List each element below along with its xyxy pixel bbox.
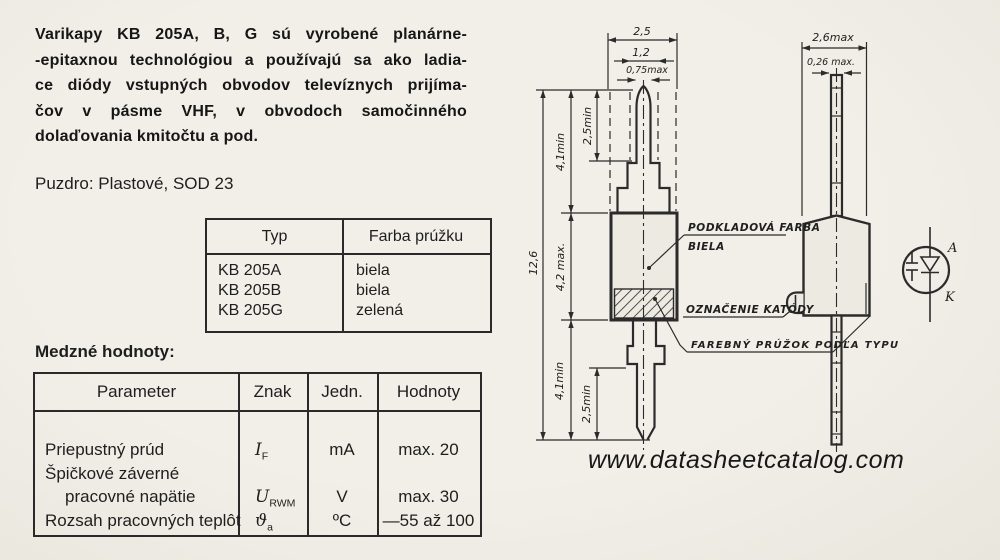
parameter-column: Priepustný prúd Špičkové záverné pracovn… bbox=[35, 438, 238, 535]
type-table-column-divider bbox=[342, 220, 344, 331]
package-drawing: 2,5 1,2 0,75max 12,6 4,1min 2,5min 4,2 m… bbox=[500, 0, 1000, 560]
table-row: KB 205A biela bbox=[207, 261, 490, 281]
varicap-symbol: A K bbox=[903, 227, 957, 322]
dim-body-length: 4,2 max. bbox=[554, 243, 567, 291]
parameter-cell: pracovné napätie bbox=[35, 485, 238, 509]
unit-cell bbox=[307, 462, 377, 486]
limits-table-header-row: Parameter Znak Jedn. Hodnoty bbox=[35, 374, 480, 410]
type-table: Typ Farba prúžku KB 205A biela KB 205B b… bbox=[205, 218, 492, 333]
symbol-cell bbox=[238, 462, 307, 486]
type-cell: KB 205G bbox=[207, 301, 342, 321]
parameter-cell: Rozsah pracovných teplôt bbox=[35, 509, 238, 533]
intro-line-1: Varikapy KB 205A, B, G sú vyrobené planá… bbox=[35, 22, 467, 48]
dim-lead-top: 4,1min bbox=[554, 133, 567, 171]
table-row: KB 205G zelená bbox=[207, 301, 490, 321]
color-cell: zelená bbox=[342, 301, 490, 321]
type-table-header-farba: Farba prúžku bbox=[342, 220, 490, 253]
color-cell: biela bbox=[342, 281, 490, 301]
limits-table: Parameter Znak Jedn. Hodnoty Priepustný … bbox=[33, 372, 482, 537]
value-cell: max. 30 bbox=[377, 485, 480, 509]
bottom-lead bbox=[628, 320, 665, 440]
limits-header-jedn: Jedn. bbox=[307, 374, 377, 410]
label-base-color-line1: PODKLADOVÁ FARBA bbox=[688, 221, 821, 234]
dim-width-outer: 2,5 bbox=[633, 25, 651, 38]
parameter-cell: Špičkové záverné bbox=[35, 462, 238, 486]
type-cell: KB 205A bbox=[207, 261, 342, 281]
unit-cell: V bbox=[307, 485, 377, 509]
value-cell bbox=[377, 462, 480, 486]
anode-label: A bbox=[947, 241, 957, 256]
value-column: max. 20 max. 30 —55 až 100 bbox=[377, 438, 480, 535]
unit-cell: mA bbox=[307, 438, 377, 462]
limits-header-hodnoty: Hodnoty bbox=[377, 374, 480, 410]
intro-line-4: čov v pásme VHF, v obvodoch samočinného bbox=[35, 99, 467, 125]
diode-triangle bbox=[921, 257, 939, 271]
dim-total-length: 12,6 bbox=[527, 251, 540, 276]
intro-line-3: ce diódy vstupných obvodov televíznych p… bbox=[35, 73, 467, 99]
label-cathode-mark: OZNAČENIE KATÓDY bbox=[686, 302, 815, 316]
parameter-cell: Priepustný prúd bbox=[35, 438, 238, 462]
side-view-drawing: 2,6max 0,26 max. bbox=[787, 31, 870, 452]
symbol-cell: URWM bbox=[238, 485, 307, 509]
package-line: Puzdro: Plastové, SOD 23 bbox=[35, 174, 233, 194]
dim-pin-diameter: 0,75max bbox=[626, 65, 668, 76]
limits-header-parameter: Parameter bbox=[35, 374, 238, 410]
dim-lead-top-inner: 2,5min bbox=[581, 107, 594, 145]
dim-side-lead-thickness: 0,26 max. bbox=[807, 57, 855, 68]
datasheet-page: Varikapy KB 205A, B, G sú vyrobené planá… bbox=[0, 0, 1000, 560]
dim-side-width: 2,6max bbox=[812, 31, 854, 44]
symbol-column: IF URWM ϑa bbox=[238, 438, 307, 535]
color-cell: biela bbox=[342, 261, 490, 281]
intro-line-2: -epitaxnou technológiou a používajú sa a… bbox=[35, 48, 467, 74]
intro-line-5: dolaďovania kmitočtu a pod. bbox=[35, 124, 467, 150]
dim-lead-bottom-inner: 2,5min bbox=[580, 385, 593, 423]
dim-width-inner: 1,2 bbox=[632, 46, 650, 59]
unit-cell: ºC bbox=[307, 509, 377, 533]
cathode-label: K bbox=[944, 290, 956, 305]
value-cell: —55 až 100 bbox=[377, 509, 480, 533]
type-table-header-typ: Typ bbox=[207, 220, 342, 253]
intro-paragraph: Varikapy KB 205A, B, G sú vyrobené planá… bbox=[35, 22, 467, 150]
table-row: KB 205B biela bbox=[207, 281, 490, 301]
label-color-stripe: FAREBNÝ PRÚŽOK PODĽA TYPU bbox=[691, 337, 899, 351]
label-base-color-line2: BIELA bbox=[688, 241, 725, 253]
value-cell: max. 20 bbox=[377, 438, 480, 462]
type-table-body: KB 205A biela KB 205B biela KB 205G zele… bbox=[207, 255, 490, 321]
symbol-cell: IF bbox=[238, 438, 307, 462]
dim-lead-bottom: 4,1min bbox=[553, 362, 566, 400]
watermark-url: www.datasheetcatalog.com bbox=[588, 446, 904, 475]
type-table-header-row: Typ Farba prúžku bbox=[207, 220, 490, 255]
limits-heading: Medzné hodnoty: bbox=[35, 342, 175, 362]
limits-table-body: Priepustný prúd Špičkové záverné pracovn… bbox=[35, 412, 480, 535]
type-cell: KB 205B bbox=[207, 281, 342, 301]
symbol-cell: ϑa bbox=[238, 509, 307, 533]
limits-header-znak: Znak bbox=[238, 374, 307, 410]
unit-column: mA V ºC bbox=[307, 438, 377, 535]
front-view-drawing: 2,5 1,2 0,75max 12,6 4,1min 2,5min 4,2 m… bbox=[527, 25, 677, 450]
